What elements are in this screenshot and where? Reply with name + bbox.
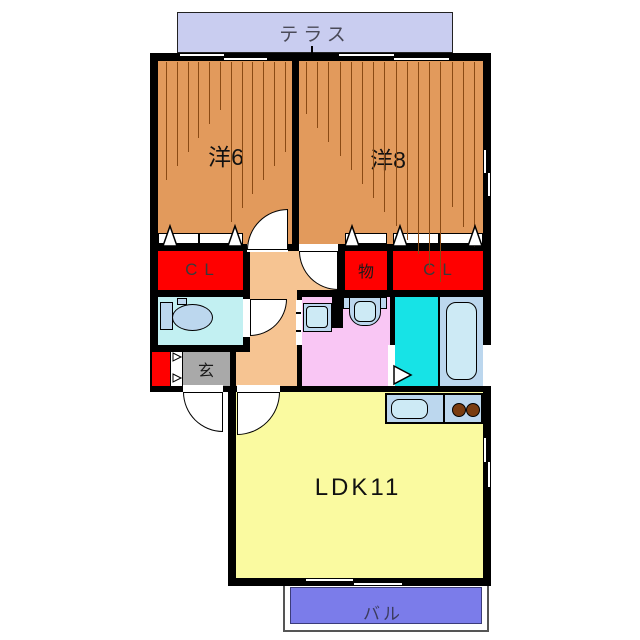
window-terrace-right-b	[393, 57, 450, 61]
wood-grain-line	[285, 62, 286, 152]
wood-grain-line	[198, 62, 199, 138]
wood-grain-line	[474, 62, 475, 247]
wood-grain-line	[188, 62, 189, 152]
terrace-label: テラス	[279, 20, 351, 47]
bathtub-icon	[446, 302, 477, 380]
joint-tick	[438, 234, 440, 244]
window-terrace-left-b	[223, 57, 268, 61]
closet-left-label: CL	[185, 260, 221, 280]
door-arc-entrance	[183, 392, 223, 432]
window-balcony-b	[353, 582, 403, 586]
wood-grain-line	[177, 62, 178, 166]
wood-grain-line	[306, 62, 307, 114]
wood-grain-line	[396, 62, 397, 226]
wood-grain-line	[274, 62, 275, 166]
wood-grain-line	[440, 62, 441, 282]
floor-plan: テラス バル CL 物 CL 玄	[0, 0, 640, 640]
joint-tick	[296, 312, 301, 314]
wood-grain-line	[317, 62, 318, 128]
wood-grain-line	[429, 62, 430, 268]
doorway-toilet	[243, 299, 250, 337]
window-west8-side-a	[483, 149, 487, 174]
window-balcony-a	[305, 578, 354, 582]
shoe-cabinet-doors	[170, 352, 183, 386]
storage-track	[345, 233, 387, 244]
window-ldk-side-a	[483, 437, 487, 463]
bathroom-door-opening	[388, 345, 395, 386]
entrance-label: 玄	[198, 357, 214, 381]
kitchen-sink-icon	[391, 399, 428, 419]
wood-grain-line	[407, 62, 408, 240]
joint-tick	[311, 46, 313, 54]
wood-grain-line	[209, 62, 210, 124]
kitchen-counter-divider	[443, 393, 445, 424]
stove-burner-icon	[452, 403, 466, 417]
wood-grain-line	[252, 62, 253, 194]
wood-grain-line	[340, 62, 341, 156]
wood-grain-line	[463, 62, 464, 227]
wood-grain-line	[328, 62, 329, 142]
stove-burner-icon	[466, 403, 480, 417]
closet-left-track	[158, 233, 243, 244]
vanity-basin-inner-icon	[354, 301, 376, 322]
wood-grain-line	[220, 62, 221, 110]
wood-grain-line	[384, 62, 385, 212]
wood-grain-line	[231, 62, 232, 222]
storage-label: 物	[358, 258, 374, 282]
window-west8-side-b	[487, 172, 491, 197]
room-west8-label: 洋8	[370, 141, 406, 175]
toilet-bowl-icon	[172, 304, 213, 331]
joint-tick	[198, 234, 200, 244]
hallway-entry	[236, 352, 250, 386]
wood-grain-line	[373, 62, 374, 198]
ldk-label: LDK11	[315, 474, 402, 502]
window-terrace-right-a	[338, 53, 395, 57]
balcony-label: バル	[363, 600, 403, 625]
wood-grain-line	[362, 62, 363, 184]
window-bathroom	[483, 345, 491, 386]
wood-grain-line	[452, 62, 453, 207]
washroom-partition	[332, 297, 343, 328]
wood-grain-line	[351, 62, 352, 170]
joint-tick	[296, 330, 301, 332]
bathroom	[395, 297, 438, 386]
wood-grain-line	[166, 62, 167, 180]
wood-grain-line	[242, 62, 243, 208]
room-west6-label: 洋6	[208, 138, 244, 172]
wood-grain-line	[263, 62, 264, 180]
wood-grain-line	[418, 62, 419, 254]
washer-pan-inner-icon	[306, 306, 328, 328]
shoe-cabinet	[152, 352, 170, 386]
window-terrace-left-a	[179, 53, 225, 57]
window-ldk-side-b	[487, 461, 491, 488]
washroom-sliding-door	[296, 300, 302, 345]
